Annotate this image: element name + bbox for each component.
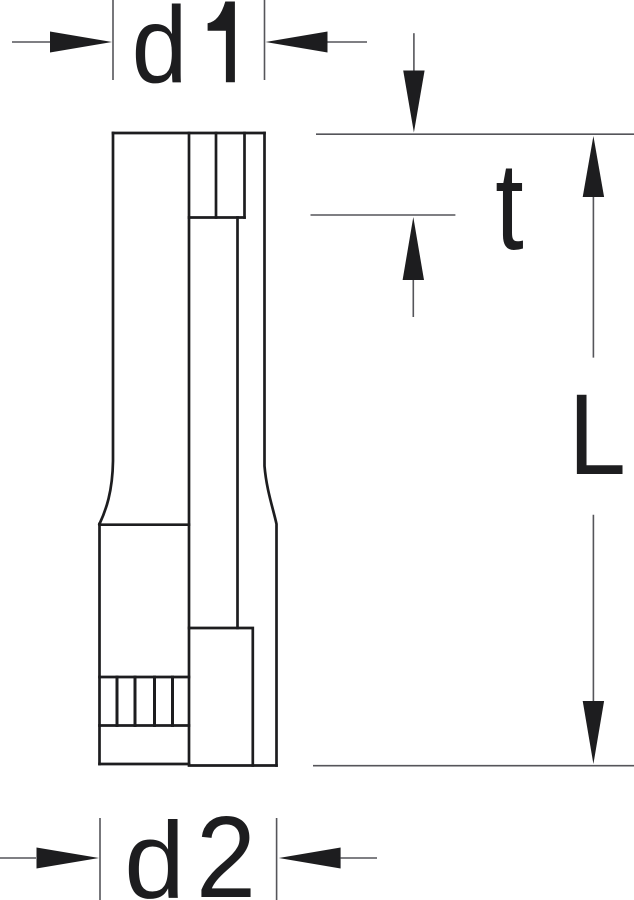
svg-text:2: 2 bbox=[196, 792, 256, 900]
svg-text:d: d bbox=[124, 800, 185, 900]
svg-text:t: t bbox=[495, 138, 524, 276]
svg-text:L: L bbox=[568, 371, 626, 499]
svg-text:d: d bbox=[132, 0, 188, 106]
